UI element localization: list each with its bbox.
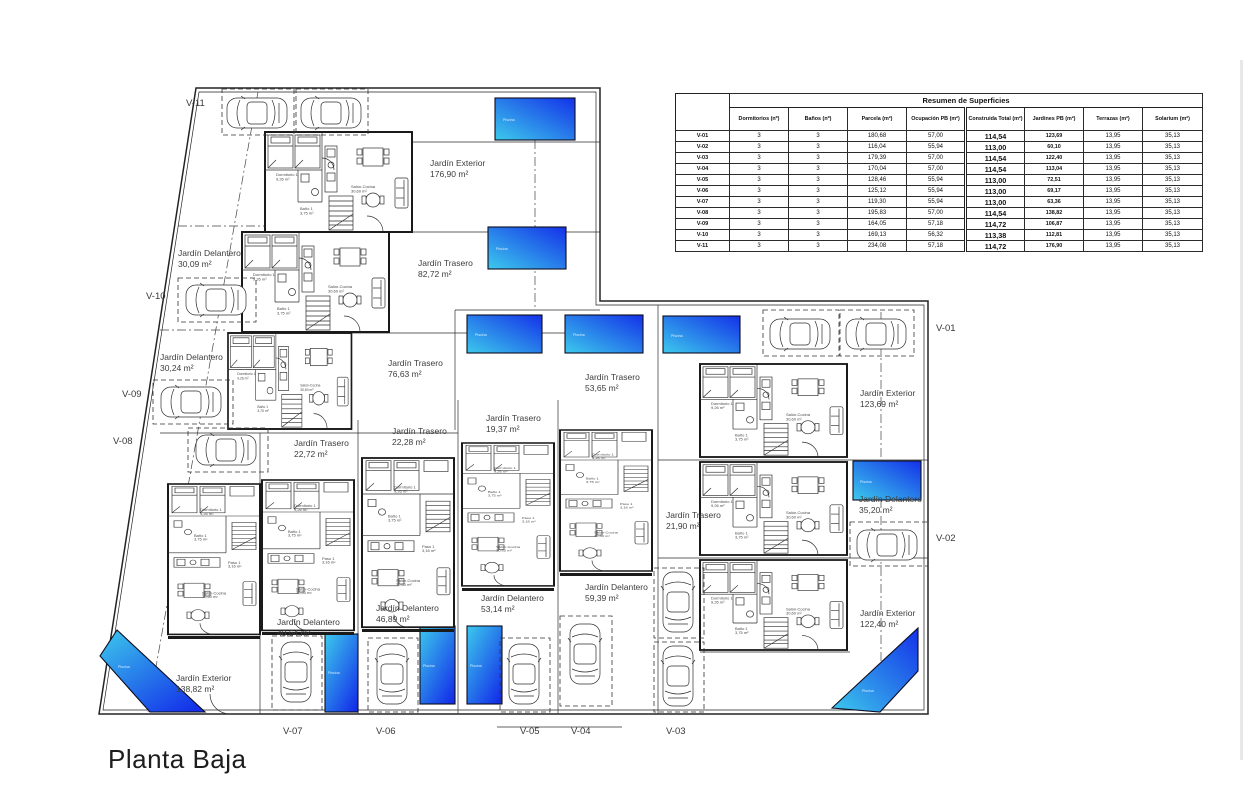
cell: 60,10 [1025, 142, 1084, 153]
cell: 63,36 [1025, 197, 1084, 208]
cell: 57,00 [907, 131, 966, 142]
row-id: V-10 [676, 230, 730, 241]
table-row: V-0733119,3055,94113,0063,3613,9535,13 [676, 197, 1203, 208]
cell: 164,05 [848, 219, 907, 230]
garden-label-name: Jardín Trasero [666, 510, 721, 520]
cell: 114,54 [966, 208, 1025, 219]
unit-label-v03: V-03 [666, 726, 686, 737]
cell: 13,95 [1084, 164, 1143, 175]
cell: 3 [789, 153, 848, 164]
cell: 123,69 [1025, 131, 1084, 142]
cell: 176,90 [1025, 241, 1084, 252]
cell: 35,13 [1143, 175, 1203, 186]
garden-label-area: 76,63 m² [388, 369, 422, 379]
garden-label-name: Jardín Exterior [860, 608, 915, 618]
garden-label-name: Jardín Exterior [430, 158, 485, 168]
pool: Piscina [663, 316, 740, 353]
row-id: V-02 [676, 142, 730, 153]
cell: 179,39 [848, 153, 907, 164]
pool-label: Piscina [503, 118, 515, 122]
pool-label: Piscina [671, 334, 683, 338]
row-id: V-01 [676, 131, 730, 142]
house-unit-v08 [168, 484, 260, 634]
garden-label-name: Jardín Trasero [294, 438, 349, 448]
garden-label-name: Jardín Trasero [418, 258, 473, 268]
unit-label-v02: V-02 [936, 533, 956, 544]
car-icon [186, 283, 246, 317]
cell: 3 [730, 175, 789, 186]
cell: 55,94 [907, 142, 966, 153]
cell: 3 [789, 131, 848, 142]
garden-label-area: 22,28 m² [392, 437, 426, 447]
unit-label-v06: V-06 [376, 726, 396, 737]
pool-label: Piscina [470, 664, 482, 668]
unit-label-v01: V-01 [936, 323, 956, 334]
garden-label-area: 82,72 m² [418, 269, 452, 279]
cell: 3 [789, 208, 848, 219]
cell: 3 [730, 197, 789, 208]
garden-label-area: 176,90 m² [430, 169, 468, 179]
pool-label: Piscina [328, 671, 340, 675]
cell: 13,95 [1084, 197, 1143, 208]
garden-label-name: Jardín Delantero [481, 593, 544, 603]
unit-label-v08: V-08 [113, 436, 133, 447]
cell: 122,40 [1025, 153, 1084, 164]
table-row: V-0933164,0557,18114,72106,8713,9535,13 [676, 219, 1203, 230]
cell: 55,94 [907, 186, 966, 197]
cell: 57,00 [907, 164, 966, 175]
table-row: V-0433170,0457,00114,54113,0413,9535,13 [676, 164, 1203, 175]
pool-label: Piscina [496, 247, 508, 251]
cell: 125,12 [848, 186, 907, 197]
cell: 170,04 [848, 164, 907, 175]
cell: 3 [789, 219, 848, 230]
garden-label-area: 30,24 m² [160, 363, 194, 373]
table-corner [676, 108, 730, 131]
garden-label-area: 21,90 m² [666, 521, 700, 531]
table-row: V-1033169,1356,32113,38112,8113,9535,13 [676, 230, 1203, 241]
cell: 13,95 [1084, 186, 1143, 197]
row-id: V-03 [676, 153, 730, 164]
garden-label-area: 59,39 m² [585, 593, 619, 603]
floor-plan-sheet: Dormitorio 1 9,26 m² Baño 1 3,75 m² Saló… [0, 0, 1246, 812]
garden-label-name: Jardín Exterior [860, 388, 915, 398]
car-icon [661, 572, 695, 632]
car-icon [375, 644, 409, 704]
cell: 3 [730, 241, 789, 252]
car-icon [161, 385, 221, 419]
garden-label-area: 53,14 m² [481, 604, 515, 614]
garden-label-name: Jardín Delantero [277, 617, 340, 627]
car-icon [661, 646, 695, 706]
garden-label-area: 19,37 m² [486, 424, 520, 434]
table-row: V-0833195,8357,00114,54138,8213,9535,13 [676, 208, 1203, 219]
cell: 13,95 [1084, 241, 1143, 252]
garden-label-area: 30,09 m² [178, 259, 212, 269]
table-corner [676, 94, 730, 108]
cell: 3 [730, 230, 789, 241]
garden-label-name: Jardín Delantero [585, 582, 648, 592]
cell: 3 [789, 186, 848, 197]
cell: 116,04 [848, 142, 907, 153]
house-unit-v01 [700, 364, 847, 457]
cell: 3 [789, 197, 848, 208]
cell: 113,00 [966, 175, 1025, 186]
cell: 234,08 [848, 241, 907, 252]
cell: 3 [789, 230, 848, 241]
pool-label: Piscina [573, 333, 585, 337]
cell: 3 [730, 131, 789, 142]
cell: 114,72 [966, 241, 1025, 252]
cell: 113,04 [1025, 164, 1084, 175]
column-header: Baños (nº) [789, 108, 848, 131]
house-unit-v09 [228, 333, 351, 429]
garden-label-name: Jardín Trasero [486, 413, 541, 423]
cell: 3 [789, 142, 848, 153]
car-icon [279, 642, 313, 702]
row-id: V-07 [676, 197, 730, 208]
unit-label-v05: V-05 [520, 726, 540, 737]
garden-label-area: 22,72 m² [294, 449, 328, 459]
garden-label-name: Jardín Delantero [178, 248, 241, 258]
cell: 13,95 [1084, 175, 1143, 186]
row-id: V-05 [676, 175, 730, 186]
house-unit-v07 [262, 480, 354, 630]
car-icon [568, 624, 602, 684]
pool-label: Piscina [862, 689, 874, 693]
garden-label-area: 53,65 m² [585, 383, 619, 393]
house-unit-v06 [362, 458, 454, 627]
pool: Piscina [565, 315, 643, 353]
cell: 3 [730, 219, 789, 230]
cell: 35,13 [1143, 164, 1203, 175]
summary-table-body: V-0133180,6857,00114,54123,6913,9535,13V… [676, 131, 1203, 252]
cell: 13,95 [1084, 153, 1143, 164]
cell: 35,13 [1143, 142, 1203, 153]
table-title-row: Resumen de Superficies [676, 94, 1203, 108]
table-row: V-0233116,0455,94113,0060,1013,9535,13 [676, 142, 1203, 153]
pool: Piscina [420, 626, 455, 704]
cell: 55,94 [907, 175, 966, 186]
cell: 180,68 [848, 131, 907, 142]
garden-label-area: 122,40 m² [860, 619, 898, 629]
cell: 35,13 [1143, 230, 1203, 241]
house-unit-v02 [700, 462, 847, 555]
cell: 195,83 [848, 208, 907, 219]
car-icon [301, 96, 361, 130]
cell: 128,46 [848, 175, 907, 186]
column-header: Ocupación PB (m²) [907, 108, 966, 131]
cell: 113,00 [966, 186, 1025, 197]
column-header: Jardines PB (m²) [1025, 108, 1084, 131]
cell: 114,54 [966, 153, 1025, 164]
cell: 3 [730, 142, 789, 153]
cell: 114,54 [966, 131, 1025, 142]
row-id: V-06 [676, 186, 730, 197]
row-id: V-08 [676, 208, 730, 219]
pool: Piscina [495, 98, 575, 140]
cell: 3 [789, 175, 848, 186]
column-header: Parcela (m²) [848, 108, 907, 131]
house-unit-v11 [265, 132, 412, 232]
column-header: Construida Total (m²) [966, 108, 1025, 131]
page-title: Planta Baja [108, 744, 246, 775]
cell: 112,81 [1025, 230, 1084, 241]
garden-label-area: 35,20 m² [859, 505, 893, 515]
row-id: V-09 [676, 219, 730, 230]
garden-label-name: Jardín Delantero [376, 603, 439, 613]
cell: 69,17 [1025, 186, 1084, 197]
cell: 138,82 [1025, 208, 1084, 219]
garden-label-area: 46,89 m² [376, 614, 410, 624]
table-row: V-0533128,4655,94113,0072,5113,9535,13 [676, 175, 1203, 186]
cell: 57,18 [907, 219, 966, 230]
house-unit-v10 [242, 232, 389, 332]
table-row: V-0133180,6857,00114,54123,6913,9535,13 [676, 131, 1203, 142]
cell: 35,13 [1143, 153, 1203, 164]
pool: Piscina [467, 626, 502, 704]
cell: 56,32 [907, 230, 966, 241]
pool-label: Piscina [423, 664, 435, 668]
column-header: Solarium (m²) [1143, 108, 1203, 131]
garden-label-area: 123,69 m² [860, 399, 898, 409]
car-icon [227, 96, 287, 130]
unit-label-v10: V-10 [146, 291, 166, 302]
pool-label: Piscina [475, 333, 487, 337]
pool: Piscina [467, 315, 542, 353]
house-unit-v04 [560, 430, 652, 571]
cell: 57,00 [907, 153, 966, 164]
column-header: Dormitorios (nº) [730, 108, 789, 131]
cell: 13,95 [1084, 219, 1143, 230]
garden-label-area: 40,64 m² [277, 628, 311, 638]
cell: 3 [789, 164, 848, 175]
cell: 13,95 [1084, 208, 1143, 219]
cell: 35,13 [1143, 208, 1203, 219]
cell: 13,95 [1084, 131, 1143, 142]
scan-artifact [1240, 60, 1243, 760]
cell: 113,00 [966, 197, 1025, 208]
cell: 113,38 [966, 230, 1025, 241]
cell: 3 [730, 208, 789, 219]
cell: 35,13 [1143, 241, 1203, 252]
pool: Piscina [325, 634, 358, 712]
table-row: V-1133234,0857,18114,72176,9013,9535,13 [676, 241, 1203, 252]
garden-label-area: 138,82 m² [176, 684, 214, 694]
pool-label: Piscina [118, 665, 130, 669]
cell: 113,00 [966, 142, 1025, 153]
table-row: V-0633125,1255,94113,0069,1713,9535,13 [676, 186, 1203, 197]
car-icon [196, 433, 256, 467]
unit-label-v04: V-04 [571, 726, 591, 737]
cell: 35,13 [1143, 131, 1203, 142]
garden-label-name: Jardín Trasero [392, 426, 447, 436]
cell: 35,13 [1143, 197, 1203, 208]
cell: 13,95 [1084, 230, 1143, 241]
garden-label-name: Jardín Delantero [859, 494, 922, 504]
cell: 35,13 [1143, 219, 1203, 230]
cell: 119,30 [848, 197, 907, 208]
cell: 3 [730, 153, 789, 164]
cell: 55,94 [907, 197, 966, 208]
car-icon [507, 644, 541, 704]
cell: 114,72 [966, 219, 1025, 230]
summary-table: Resumen de Superficies Dormitorios (nº)B… [675, 93, 1203, 252]
cell: 72,51 [1025, 175, 1084, 186]
cell: 13,95 [1084, 142, 1143, 153]
pool: Piscina [488, 227, 566, 269]
garden-label-name: Jardín Trasero [585, 372, 640, 382]
pool: Piscina [100, 630, 205, 712]
cell: 114,54 [966, 164, 1025, 175]
unit-label-v07: V-07 [283, 726, 303, 737]
house-unit-v03 [700, 560, 847, 650]
cell: 57,00 [907, 208, 966, 219]
cell: 35,13 [1143, 186, 1203, 197]
garden-label-name: Jardín Delantero [160, 352, 223, 362]
car-icon [770, 317, 830, 351]
car-icon [857, 528, 917, 562]
garden-label-name: Jardín Exterior [176, 673, 231, 683]
column-header: Terrazas (m²) [1084, 108, 1143, 131]
cell: 169,13 [848, 230, 907, 241]
house-unit-v05 [462, 443, 554, 586]
pool-label: Piscina [860, 480, 872, 484]
unit-label-v11: V-11 [186, 98, 205, 109]
unit-label-v09: V-09 [122, 389, 142, 400]
cell: 57,18 [907, 241, 966, 252]
table-header-row: Dormitorios (nº)Baños (nº)Parcela (m²)Oc… [676, 108, 1203, 131]
table-title: Resumen de Superficies [730, 94, 1203, 108]
row-id: V-04 [676, 164, 730, 175]
row-id: V-11 [676, 241, 730, 252]
cell: 3 [789, 241, 848, 252]
cell: 106,87 [1025, 219, 1084, 230]
garden-label-name: Jardín Trasero [388, 358, 443, 368]
car-icon [846, 317, 906, 351]
cell: 3 [730, 164, 789, 175]
table-row: V-0333179,3957,00114,54122,4013,9535,13 [676, 153, 1203, 164]
cell: 3 [730, 186, 789, 197]
